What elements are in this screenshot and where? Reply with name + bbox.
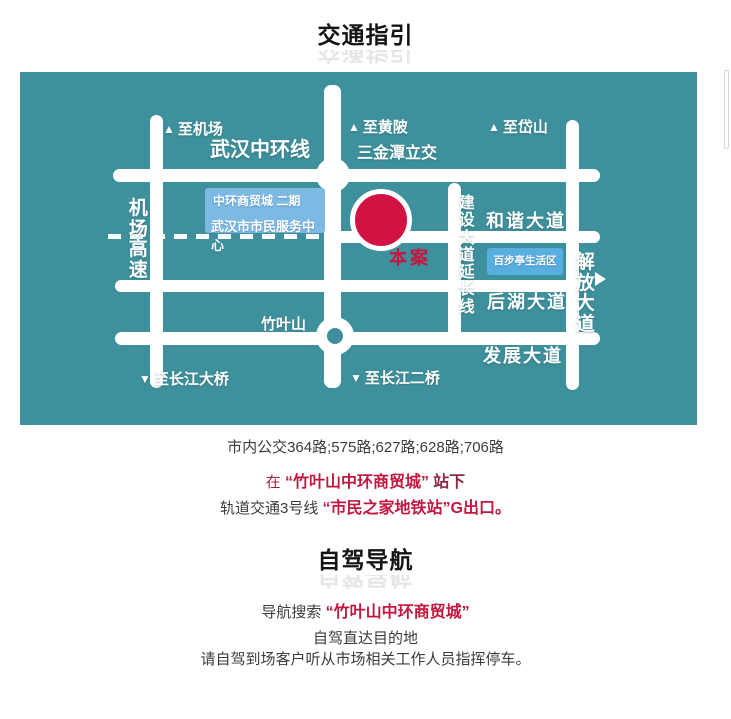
label-ring-road: 武汉中环线	[210, 139, 310, 161]
up-triangle-icon: ▲	[488, 120, 500, 134]
driving-title-reflection: 自驾导航	[0, 575, 731, 590]
stop-prefix: 在	[266, 474, 281, 491]
up-triangle-icon: ▲	[163, 122, 175, 136]
baibuting-box: 百步亭生活区	[487, 248, 563, 275]
scrollbar-thumb[interactable]	[724, 70, 729, 149]
road-ring-road	[113, 169, 600, 182]
label-jiefang-avenue: 解放大道	[575, 253, 596, 335]
stop-highlight: “竹叶山中环商贸城”	[285, 474, 429, 491]
section-heading-transit: 交通指引 交通指引	[0, 22, 731, 65]
market-info-line2: 武汉市市民服务中心	[205, 209, 325, 254]
up-triangle-icon: ▲	[348, 120, 360, 134]
label-to-daishan: ▲至岱山	[488, 120, 548, 137]
site-marker-icon	[350, 189, 412, 251]
down-triangle-icon: ▼	[350, 371, 362, 385]
section-heading-driving: 自驾导航 自驾导航	[0, 547, 731, 590]
label-fazhan-avenue: 发展大道	[483, 347, 563, 367]
road-fazhan-avenue	[115, 332, 600, 345]
label-interchange: 三金潭立交	[357, 145, 437, 163]
page-title: 交通指引	[0, 22, 731, 50]
label-houhu-avenue: 后湖大道	[487, 293, 567, 313]
label-jianshe-avenue-ext: 建设大道延长线	[458, 195, 475, 316]
page: 交通指引 交通指引 中环商贸城 二期 武汉市市民服务中心 百步亭生活区	[0, 0, 731, 719]
drive-direct-line: 自驾直达目的地	[0, 629, 731, 649]
bus-stop-line: 在 “竹叶山中环商贸城” 站下	[0, 473, 731, 494]
label-to-huangpi: ▲至黄陂	[348, 120, 408, 137]
down-triangle-icon: ▼	[139, 372, 151, 386]
page-title-reflection: 交通指引	[0, 50, 731, 65]
label-to-yangtze-bridge: ▼至长江大桥	[139, 372, 229, 389]
label-zhuyeshan: 竹叶山	[261, 317, 306, 334]
stop-suffix: 站下	[433, 474, 465, 491]
parking-note-line: 请自驾到场客户听从市场相关工作人员指挥停车。	[0, 650, 731, 670]
nav-search-line: 导航搜索 “竹叶山中环商贸城”	[0, 603, 731, 624]
bus-routes-line: 市内公交364路;575路;627路;628路;706路	[0, 438, 731, 458]
sanjintan-roundabout	[316, 158, 350, 192]
driving-title: 自驾导航	[0, 547, 731, 575]
zhuyeshan-roundabout	[316, 317, 354, 355]
traffic-map-image: 中环商贸城 二期 武汉市市民服务中心 百步亭生活区 ▲至机场 ▲至黄陂 ▲至岱山…	[20, 72, 697, 425]
metro-highlight: “市民之家地铁站”	[323, 500, 451, 517]
label-to-yangtze-bridge2: ▼至长江二桥	[350, 371, 440, 388]
road-direction-arrow-icon	[595, 272, 606, 286]
road-airport-expressway	[150, 115, 163, 388]
road-houhu-avenue	[115, 280, 578, 292]
label-hexie-avenue: 和谐大道	[486, 212, 566, 232]
metro-suffix: G出口。	[451, 500, 511, 517]
search-prefix: 导航搜索	[261, 604, 321, 621]
market-info-box: 中环商贸城 二期 武汉市市民服务中心	[205, 188, 325, 233]
metro-line: 轨道交通3号线 “市民之家地铁站”G出口。	[0, 499, 731, 520]
label-to-airport: ▲至机场	[163, 122, 223, 139]
label-site: 本案	[389, 249, 431, 269]
search-highlight: “竹叶山中环商贸城”	[326, 604, 470, 621]
market-info-line1: 中环商贸城 二期	[205, 188, 325, 209]
metro-prefix: 轨道交通3号线	[220, 500, 318, 517]
roundabout-center	[327, 328, 343, 344]
label-airport-expressway: 机场高速	[128, 199, 149, 281]
